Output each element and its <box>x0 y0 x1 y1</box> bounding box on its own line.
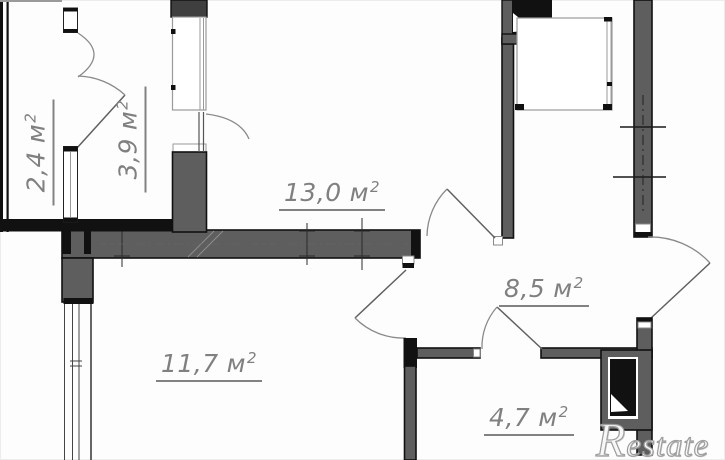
bottom-wall-of-storage-rooms <box>0 219 190 232</box>
room-area-label-4-7: 4,7м2 <box>484 405 574 436</box>
floor-plan-drawing <box>0 0 725 460</box>
watermark-logo: Restate <box>596 410 725 460</box>
wall-130-right <box>494 38 514 245</box>
room-area-label-13-0: 13,0м2 <box>279 180 385 211</box>
wall-39-130 <box>171 0 207 232</box>
door-hall-47 <box>482 307 542 349</box>
room-area-label-8-5: 8,5м2 <box>499 276 589 307</box>
glazed-column-top-right <box>515 17 612 110</box>
door-130-hall <box>427 189 495 238</box>
folding-door-symbol <box>78 33 94 77</box>
partition-window-top <box>64 8 78 33</box>
door-hall-117 <box>355 256 414 338</box>
main-interior-wall <box>62 229 420 302</box>
room-area-label-11-7: 11,7м2 <box>156 351 262 382</box>
wall-117-47 <box>404 338 418 460</box>
room-area-label-2-4: 2,4м2 <box>24 100 55 206</box>
right-exterior-wall-upper <box>613 0 666 237</box>
entrance-door-arc <box>648 237 710 318</box>
partition-window-bottom <box>64 147 78 223</box>
floor-plan: 2,4м2 3,9м2 13,0м2 8,5м2 11,7м2 4,7м2 Re… <box>0 0 725 460</box>
room-area-label-3-9: 3,9м2 <box>116 87 147 193</box>
balcony-window-left <box>64 298 94 460</box>
